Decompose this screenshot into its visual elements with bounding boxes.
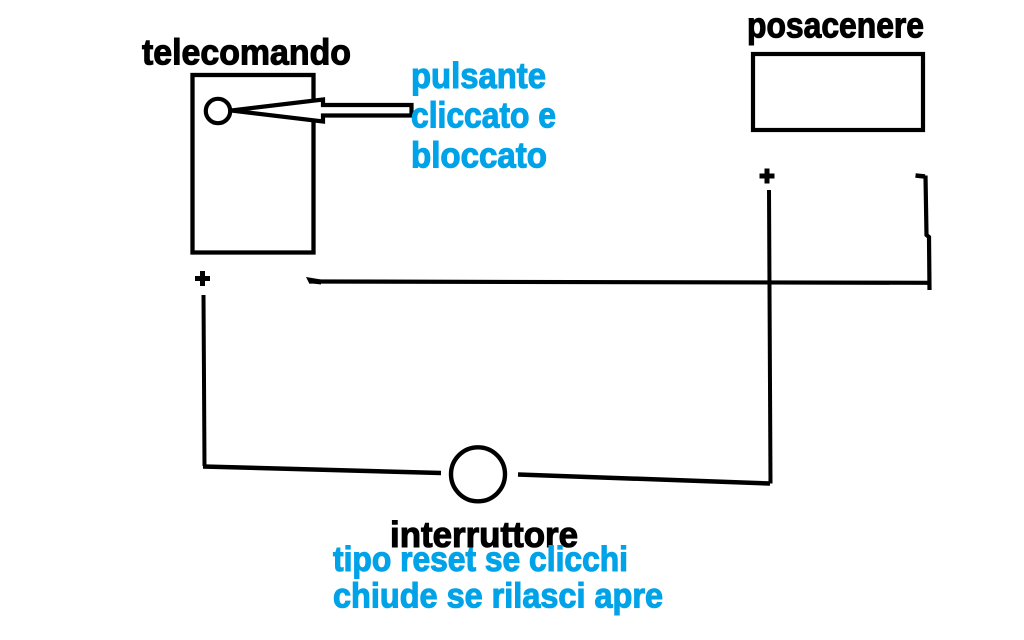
svg-text:chiude se rilasci apre: chiude se rilasci apre [333, 577, 663, 616]
svg-text:bloccato: bloccato [411, 135, 547, 176]
svg-text:tipo reset se clicchi: tipo reset se clicchi [333, 540, 628, 579]
svg-text:cliccato e: cliccato e [411, 95, 556, 136]
svg-text:telecomando: telecomando [142, 32, 351, 73]
svg-text:pulsante: pulsante [411, 55, 546, 96]
svg-text:posacenere: posacenere [747, 5, 924, 46]
